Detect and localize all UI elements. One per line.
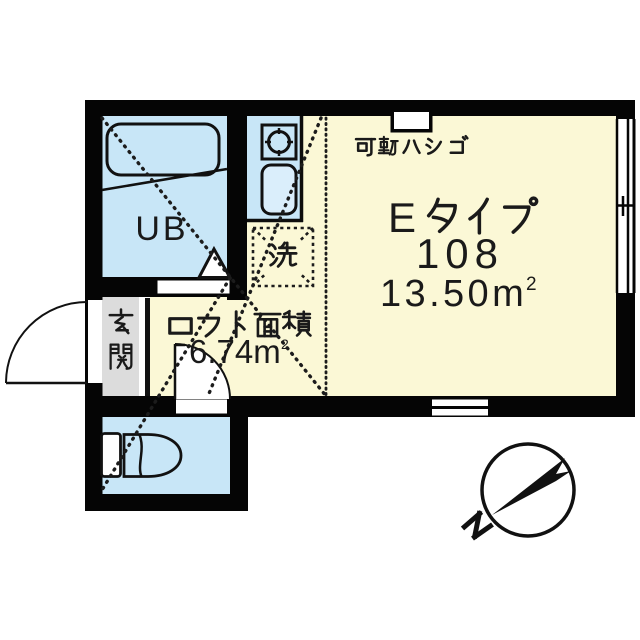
svg-text:2: 2 [281,336,289,352]
svg-text:13.50m: 13.50m [380,273,527,315]
svg-text:E: E [388,194,416,241]
svg-text:108: 108 [416,230,504,277]
svg-text:6.74m: 6.74m [189,333,281,370]
svg-text:UB: UB [135,210,188,248]
svg-text:2: 2 [526,274,537,295]
